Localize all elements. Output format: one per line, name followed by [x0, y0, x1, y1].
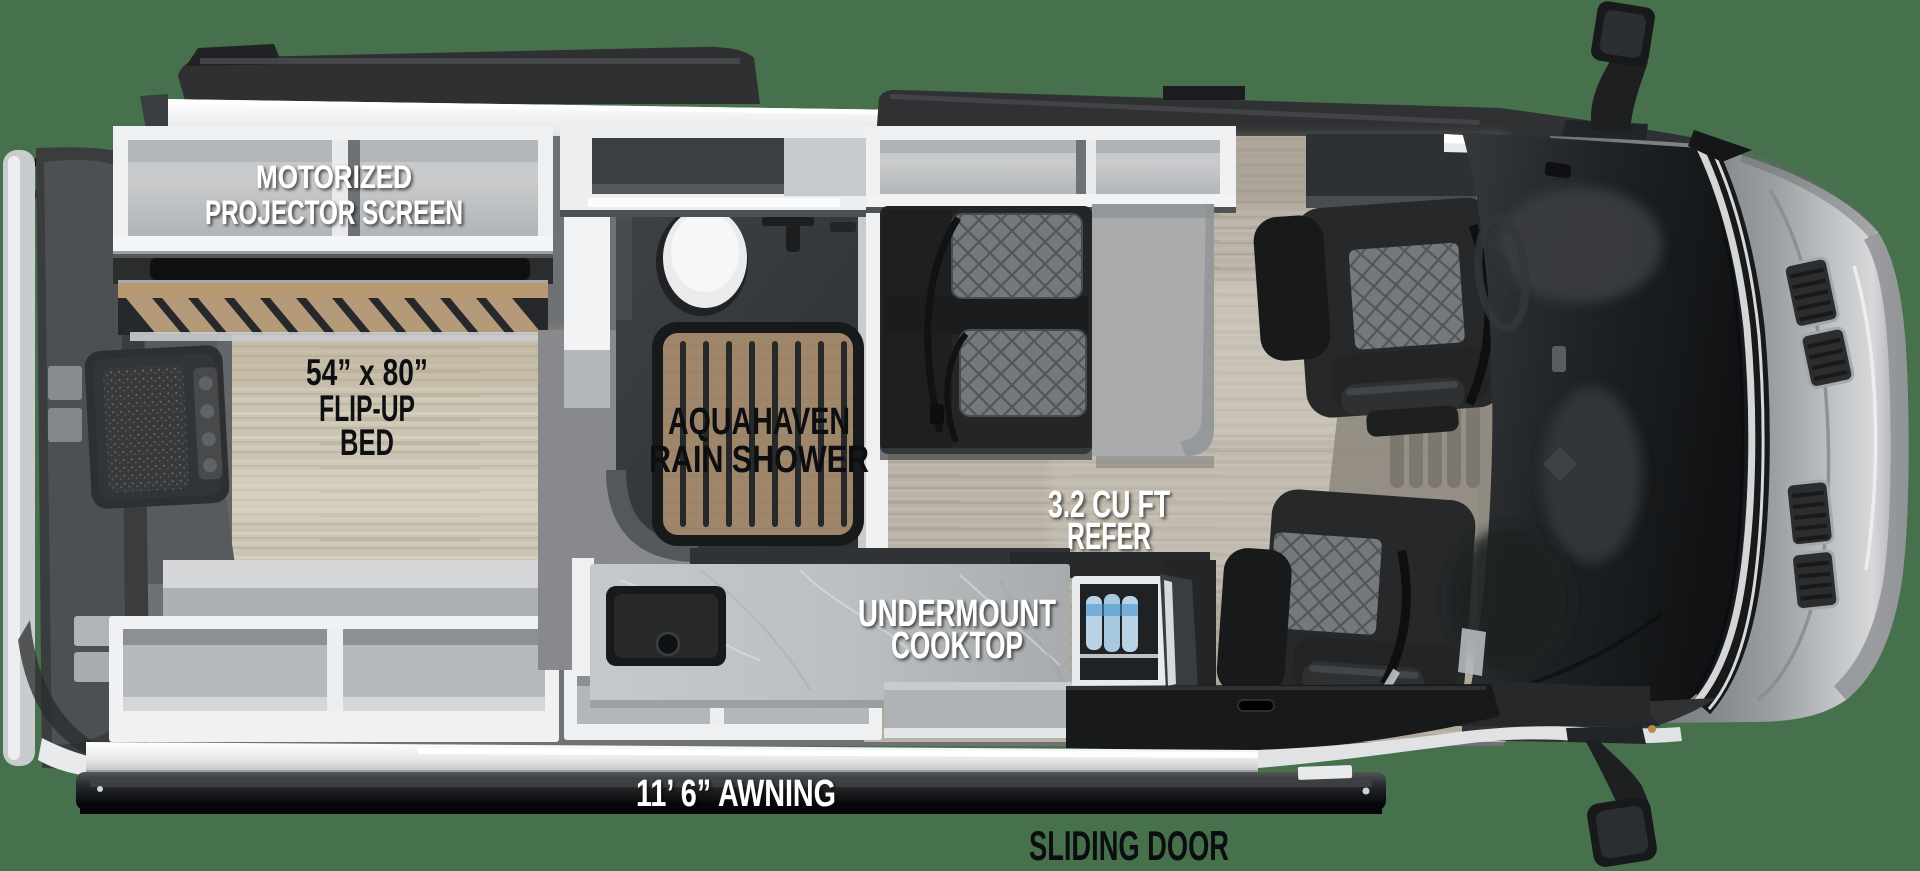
svg-text:BED: BED	[340, 422, 394, 463]
svg-text:11’ 6” AWNING: 11’ 6” AWNING	[636, 773, 836, 815]
svg-text:SLIDING DOOR: SLIDING DOOR	[1029, 822, 1229, 869]
svg-text:MOTORIZED: MOTORIZED	[256, 159, 412, 195]
svg-text:PROJECTOR SCREEN: PROJECTOR SCREEN	[205, 194, 463, 232]
svg-text:COOKTOP: COOKTOP	[891, 625, 1023, 667]
svg-text:54” x 80”: 54” x 80”	[306, 352, 428, 393]
svg-text:RAIN SHOWER: RAIN SHOWER	[649, 439, 869, 481]
svg-text:AQUAHAVEN: AQUAHAVEN	[668, 401, 850, 443]
svg-text:REFER: REFER	[1067, 516, 1151, 558]
